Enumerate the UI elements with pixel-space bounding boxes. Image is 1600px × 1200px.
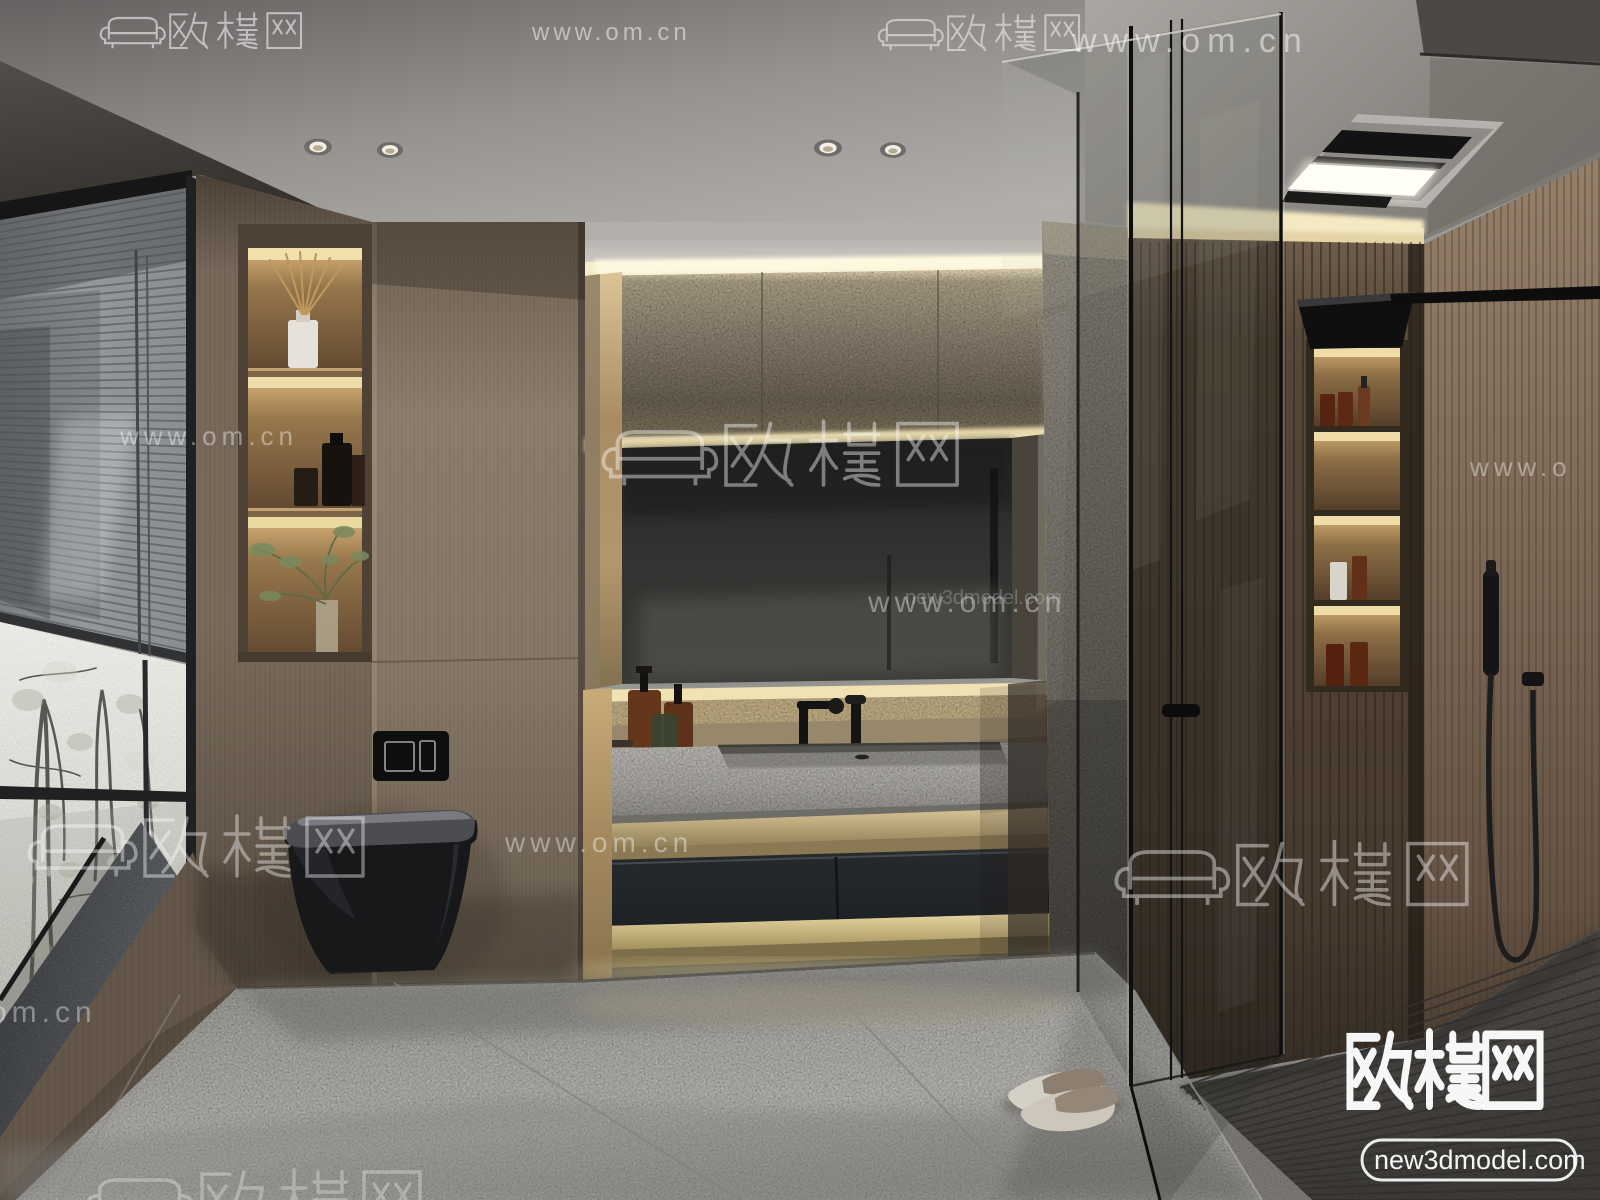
svg-text:new3dmodel.com: new3dmodel.com [905, 587, 1062, 609]
svg-text:www.om.cn: www.om.cn [119, 421, 298, 451]
svg-text:www.o: www.o [1469, 452, 1572, 482]
svg-text:www.om.cn: www.om.cn [531, 19, 691, 46]
svg-text:www.om.cn: www.om.cn [1071, 22, 1309, 60]
svg-text:www.om.cn: www.om.cn [504, 827, 693, 858]
svg-text:om.cn: om.cn [0, 996, 97, 1029]
svg-text:new3dmodel.com: new3dmodel.com [1374, 1145, 1586, 1175]
